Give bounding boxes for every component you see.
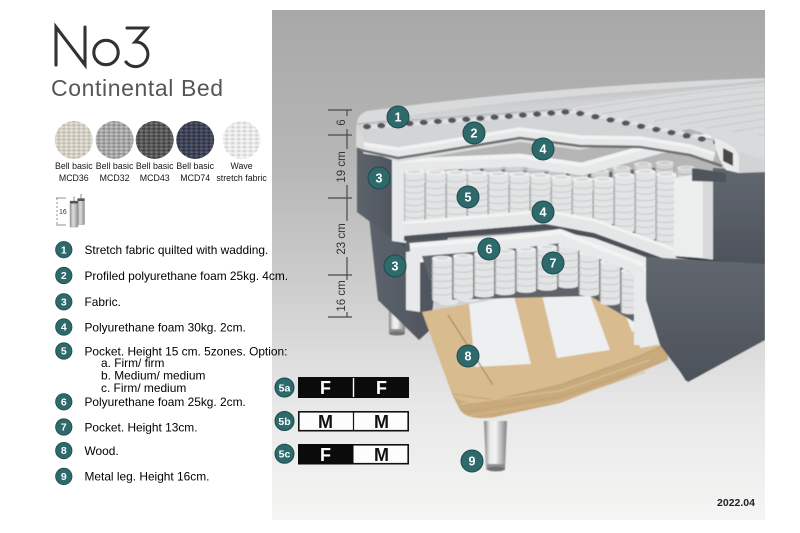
svg-text:Wave: Wave (231, 161, 253, 171)
svg-text:9: 9 (61, 471, 67, 483)
svg-text:6: 6 (486, 243, 493, 257)
svg-text:5: 5 (61, 346, 67, 358)
svg-text:5: 5 (465, 191, 472, 205)
svg-text:MCD43: MCD43 (140, 173, 170, 183)
svg-text:Continental Bed: Continental Bed (51, 75, 224, 101)
svg-text:c. Firm/ medium: c. Firm/ medium (101, 381, 186, 395)
svg-text:Metal leg. Height 16cm.: Metal leg. Height 16cm. (85, 470, 210, 484)
svg-text:Bell basic: Bell basic (55, 161, 93, 171)
svg-text:Fabric.: Fabric. (85, 295, 121, 309)
svg-text:5c: 5c (279, 449, 291, 461)
svg-text:6: 6 (61, 396, 67, 408)
svg-text:Profiled polyurethane foam 25k: Profiled polyurethane foam 25kg. 4cm. (85, 269, 289, 283)
svg-text:stretch fabric: stretch fabric (216, 173, 267, 183)
svg-text:Pocket. Height 13cm.: Pocket. Height 13cm. (85, 420, 198, 434)
svg-text:4: 4 (540, 143, 547, 157)
svg-text:3: 3 (376, 172, 383, 186)
svg-text:Wood.: Wood. (85, 444, 119, 458)
svg-text:9: 9 (469, 455, 476, 469)
svg-text:8: 8 (465, 350, 472, 364)
svg-text:19 cm: 19 cm (336, 151, 348, 182)
svg-text:8: 8 (61, 445, 67, 457)
svg-text:MCD36: MCD36 (59, 173, 89, 183)
svg-text:F: F (320, 378, 331, 398)
svg-text:F: F (376, 378, 387, 398)
svg-text:M: M (374, 445, 389, 465)
svg-text:16: 16 (59, 209, 67, 216)
svg-text:M: M (374, 412, 389, 432)
svg-text:1: 1 (395, 111, 402, 125)
svg-text:Bell basic: Bell basic (176, 161, 214, 171)
svg-text:M: M (318, 412, 333, 432)
svg-text:MCD74: MCD74 (180, 173, 210, 183)
svg-text:F: F (320, 445, 331, 465)
svg-text:6: 6 (336, 119, 348, 125)
svg-text:3: 3 (392, 260, 399, 274)
svg-text:Polyurethane foam 30kg. 2cm.: Polyurethane foam 30kg. 2cm. (85, 320, 246, 334)
svg-text:16 cm: 16 cm (336, 280, 348, 311)
svg-text:4: 4 (61, 322, 67, 334)
svg-text:2022.04: 2022.04 (717, 497, 755, 509)
svg-text:2: 2 (61, 270, 67, 282)
svg-text:5b: 5b (278, 416, 290, 428)
svg-text:2: 2 (471, 127, 478, 141)
svg-text:7: 7 (61, 422, 67, 434)
svg-text:7: 7 (550, 257, 557, 271)
svg-text:Stretch fabric quilted with wa: Stretch fabric quilted with wadding. (85, 243, 269, 257)
svg-text:1: 1 (61, 244, 67, 256)
svg-text:Bell basic: Bell basic (136, 161, 174, 171)
svg-text:MCD32: MCD32 (100, 173, 130, 183)
svg-text:23 cm: 23 cm (336, 223, 348, 254)
svg-text:Polyurethane foam 25kg. 2cm.: Polyurethane foam 25kg. 2cm. (85, 395, 246, 409)
svg-text:Bell basic: Bell basic (96, 161, 134, 171)
svg-text:4: 4 (540, 206, 547, 220)
svg-text:3: 3 (61, 296, 67, 308)
svg-text:5a: 5a (279, 382, 291, 394)
